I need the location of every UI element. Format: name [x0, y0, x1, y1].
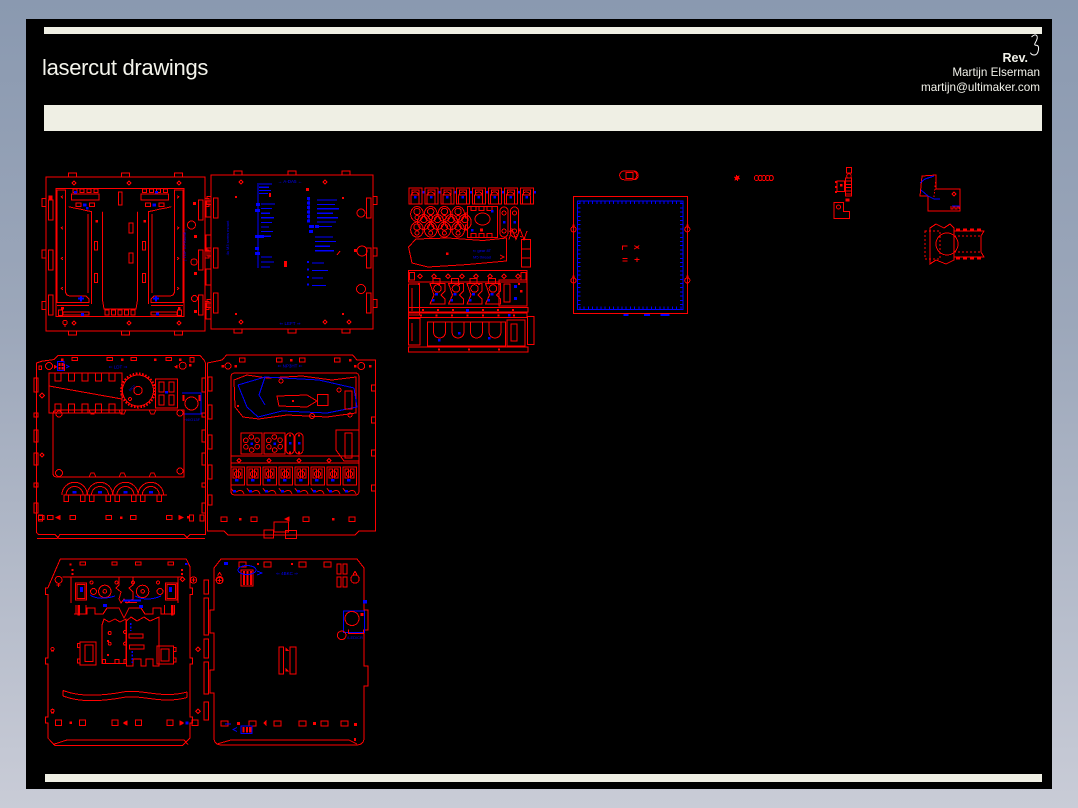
svg-text:⇐ NP3HT ⇐: ⇐ NP3HT ⇐	[278, 364, 303, 369]
svg-text:→ A-DA5 ←: → A-DA5 ←	[278, 179, 303, 184]
svg-text:4x M3 screw mount: 4x M3 screw mount	[225, 220, 230, 256]
svg-text:⇐ LDT ⇒: ⇐ LDT ⇒	[109, 365, 128, 370]
svg-text:⇐ gear 8T: ⇐ gear 8T	[473, 248, 492, 253]
svg-text:| TOP V-FRAME |: | TOP V-FRAME |	[182, 229, 187, 260]
svg-text:⇐ LEFT ⇒: ⇐ LEFT ⇒	[280, 321, 301, 326]
svg-text:⇐ 4BKC ⇒: ⇐ 4BKC ⇒	[276, 571, 298, 576]
svg-text:MOT: MOT	[128, 384, 137, 393]
svg-text:M5 thread: M5 thread	[473, 255, 491, 260]
svg-text:/LED/CR: /LED/CR	[347, 635, 363, 640]
svg-text:H4/O13F: H4/O13F	[184, 417, 201, 422]
